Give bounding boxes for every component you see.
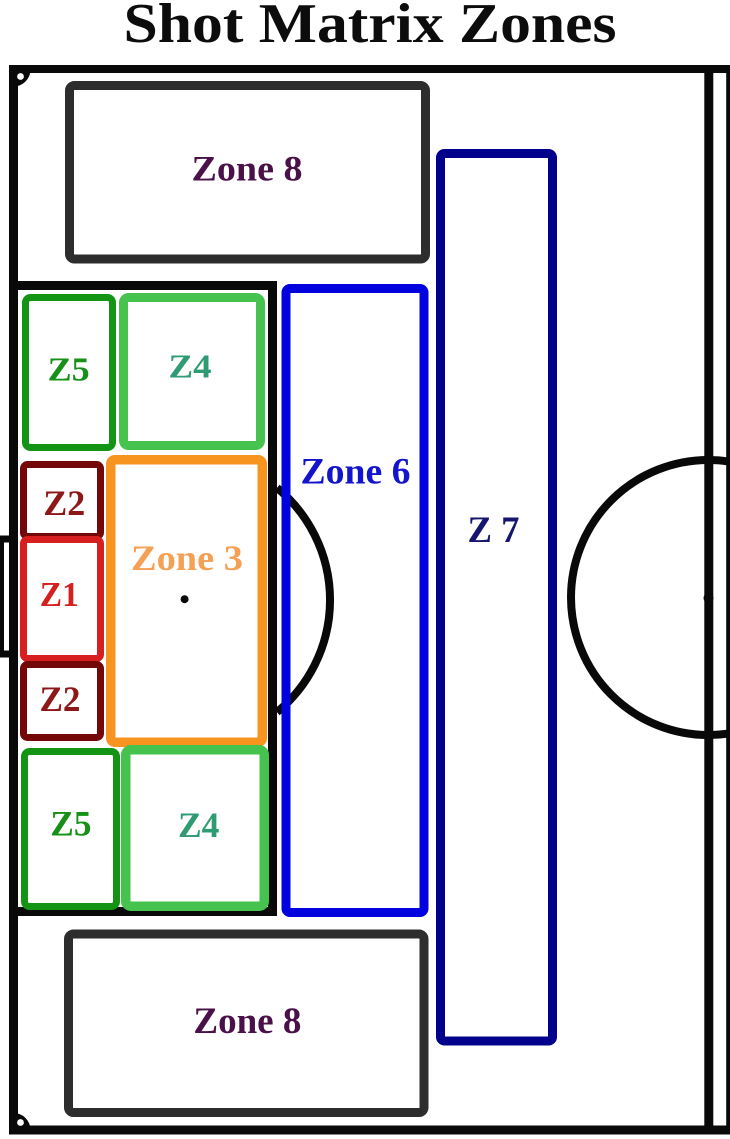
svg-text:Z2: Z2: [40, 679, 81, 719]
svg-text:Zone 3: Zone 3: [131, 538, 243, 578]
svg-text:Zone 8: Zone 8: [193, 1001, 301, 1042]
svg-text:Z5: Z5: [50, 804, 91, 844]
svg-text:Z4: Z4: [169, 349, 212, 386]
svg-text:Z 7: Z 7: [468, 510, 520, 551]
svg-text:Z5: Z5: [48, 352, 90, 389]
svg-text:Zone 8: Zone 8: [192, 149, 303, 189]
svg-text:Z4: Z4: [178, 805, 219, 845]
svg-text:Z1: Z1: [40, 575, 79, 614]
svg-text:Shot Matrix Zones: Shot Matrix Zones: [124, 0, 617, 55]
svg-text:Z2: Z2: [43, 483, 85, 523]
svg-text:Zone 6: Zone 6: [301, 452, 411, 493]
